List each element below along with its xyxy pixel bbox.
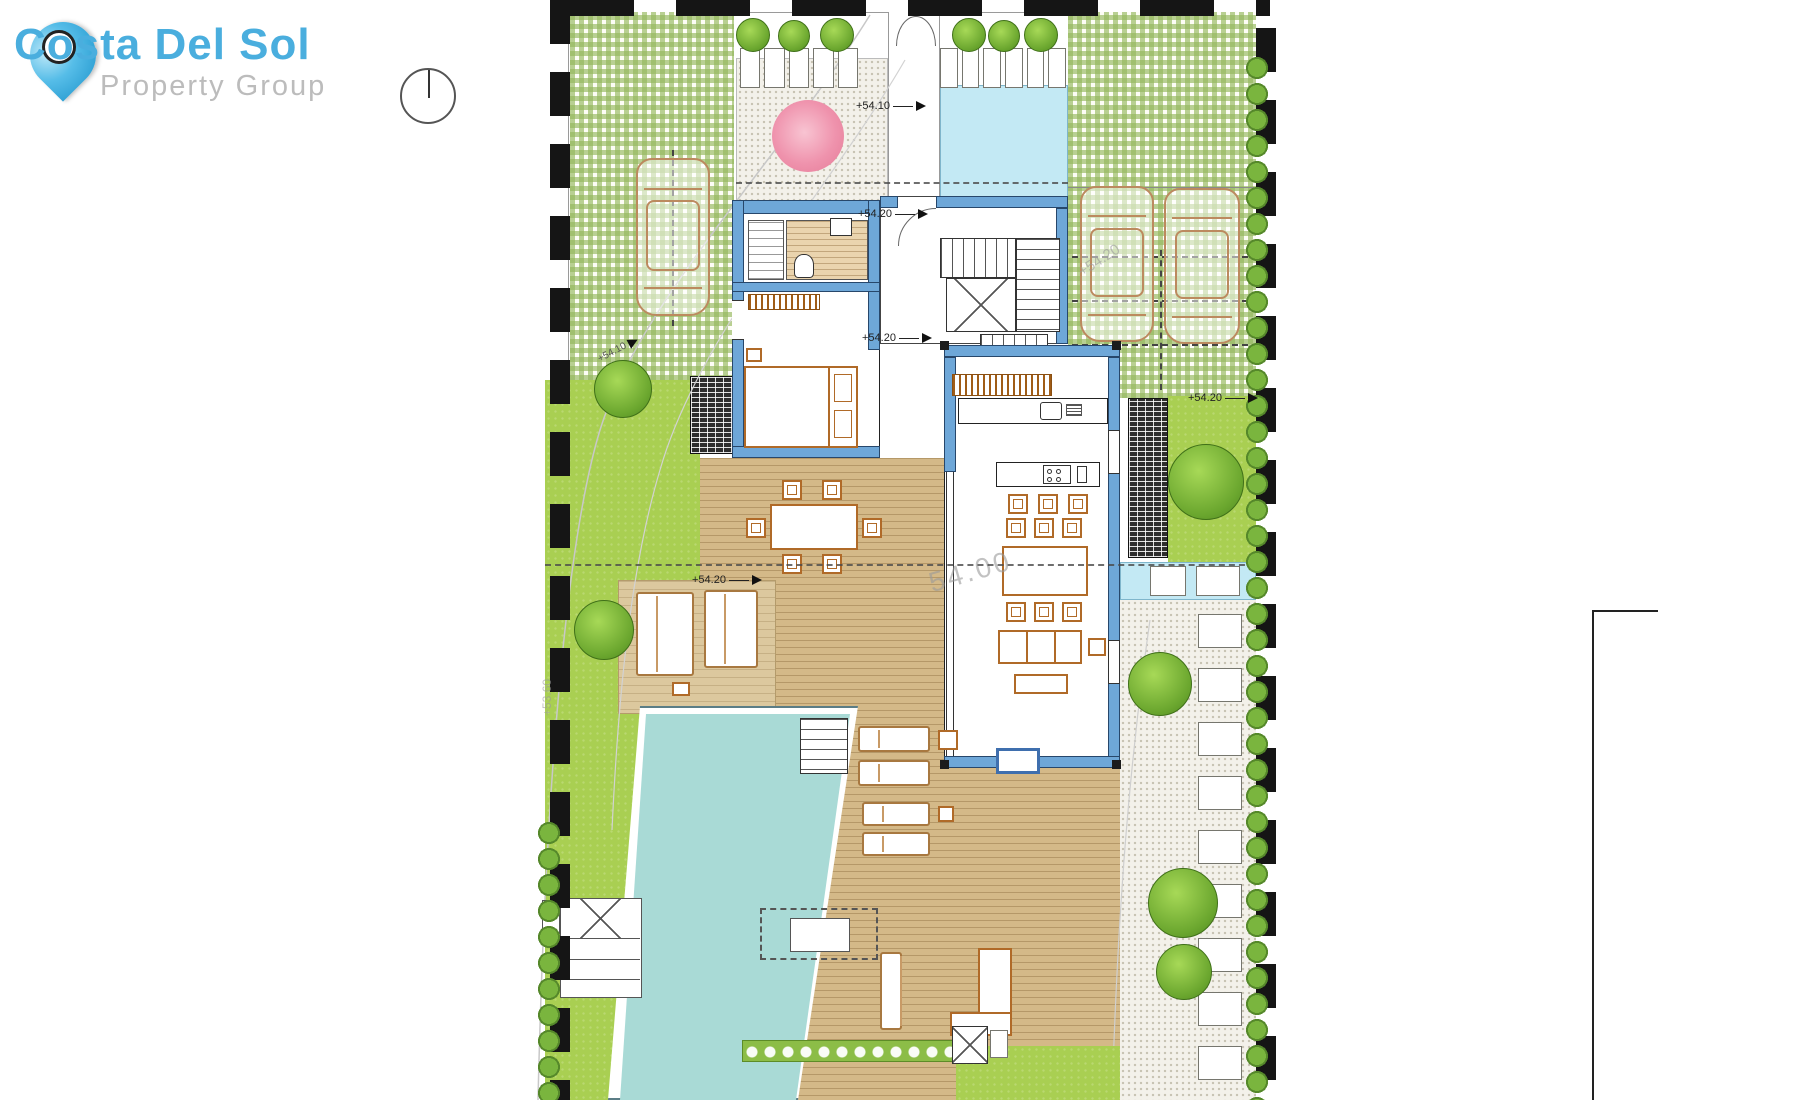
stepping-stone <box>1150 566 1186 596</box>
tree-icon <box>1024 18 1058 52</box>
kitchen-counter <box>958 398 1108 424</box>
sun-lounger <box>862 832 930 856</box>
drainer <box>1066 404 1082 416</box>
dining-chair <box>1006 602 1026 622</box>
dining-table <box>1002 546 1088 596</box>
staircase-side-flight <box>1016 238 1060 332</box>
level-label-entry-hall: +54.20 <box>858 208 928 220</box>
shower <box>748 220 784 280</box>
sofa <box>998 630 1082 664</box>
dining-chair <box>1034 602 1054 622</box>
stepping-stone <box>1198 722 1242 756</box>
outdoor-table-dashed <box>760 908 878 960</box>
outdoor-chair <box>782 480 802 500</box>
level-leader <box>895 214 915 215</box>
window <box>1108 430 1120 474</box>
level-flag-icon <box>916 101 926 111</box>
tree-icon <box>594 360 652 418</box>
column <box>940 341 949 350</box>
hedge-west <box>536 820 564 1100</box>
bar-stool <box>1038 494 1058 514</box>
car-parking-2 <box>1164 188 1240 344</box>
dining-chair <box>1062 518 1082 538</box>
wall <box>868 200 880 350</box>
garden-box <box>990 1030 1008 1058</box>
wall <box>880 196 898 208</box>
wardrobe <box>748 294 820 310</box>
column <box>1112 341 1121 350</box>
level-label-entrance: +54.10 <box>856 100 926 112</box>
bedside-table <box>746 348 762 362</box>
side-table <box>938 730 958 750</box>
side-table <box>938 806 954 822</box>
tree-icon <box>1128 652 1192 716</box>
planter-row-east <box>940 48 1066 88</box>
staircase-upper-flight <box>940 238 1016 278</box>
wall <box>732 282 880 292</box>
dining-chair <box>1034 518 1054 538</box>
side-table <box>1088 638 1106 656</box>
sun-lounger <box>858 726 930 752</box>
level-text: +54.20 <box>692 574 726 586</box>
level-flag-icon <box>1248 393 1258 403</box>
outdoor-chair <box>822 480 842 500</box>
stepping-stone <box>1196 566 1240 596</box>
tree-icon <box>1156 944 1212 1000</box>
stepping-stone <box>1198 668 1242 702</box>
wall <box>936 196 1068 208</box>
window <box>1108 640 1120 684</box>
wall <box>944 345 1120 357</box>
kitchen-island <box>996 462 1100 487</box>
sliding-door <box>996 748 1040 774</box>
double-bed <box>744 366 858 448</box>
daybed <box>636 592 694 676</box>
tree-icon <box>574 600 634 660</box>
level-flag-icon <box>918 209 928 219</box>
dining-chair <box>1006 518 1026 538</box>
glass-wall-west <box>946 472 954 756</box>
stair-void <box>946 278 1016 332</box>
bench <box>880 952 902 1030</box>
tree-icon <box>1148 868 1218 938</box>
level-label-terrace: +54.20 <box>692 574 762 586</box>
stepping-stone <box>1198 776 1242 810</box>
tree-icon <box>736 18 770 52</box>
window <box>732 300 744 340</box>
level-leader <box>729 580 749 581</box>
pool-steps <box>800 718 848 774</box>
site-plan-page: Costa Del Sol Property Group <box>0 0 1800 1100</box>
daybed <box>704 590 758 668</box>
sideboard <box>952 374 1052 396</box>
pouf <box>672 682 690 696</box>
terrain-contours <box>0 0 1800 1100</box>
tree-icon <box>952 18 986 52</box>
column <box>1112 760 1121 769</box>
dining-chair <box>1062 602 1082 622</box>
outdoor-dining-table <box>770 504 858 550</box>
level-text: +54.10 <box>856 100 890 112</box>
floor-plan: 54.00 <box>0 0 1800 1100</box>
boundary-watermark: +53.60 <box>540 679 554 716</box>
level-label-landing: +54.20 <box>862 332 932 344</box>
column <box>940 760 949 769</box>
section-line-upper <box>736 182 1068 184</box>
car-driveway <box>636 158 710 316</box>
toilet <box>794 254 814 278</box>
parking-dash-v <box>1160 250 1162 390</box>
bar-stool <box>1068 494 1088 514</box>
oven <box>1077 466 1087 483</box>
tree-icon <box>988 20 1020 52</box>
stepping-stone <box>1198 992 1242 1026</box>
boundary-top <box>560 0 1270 16</box>
section-line-main <box>545 564 1255 566</box>
garden-structure <box>952 1026 988 1064</box>
level-label-garden-east: +54.20 <box>1188 392 1258 404</box>
level-text: +54.20 <box>1188 392 1222 404</box>
outdoor-chair <box>746 518 766 538</box>
garden-shed <box>560 898 642 998</box>
stepping-stone <box>1198 830 1242 864</box>
planter-row-west <box>740 48 858 88</box>
tree-icon <box>820 18 854 52</box>
level-leader <box>899 338 919 339</box>
flowering-tree <box>772 100 844 172</box>
sun-lounger <box>862 802 930 826</box>
washbasin <box>830 218 852 236</box>
hedge-east <box>1244 55 1272 1100</box>
stepping-stone <box>1198 614 1242 648</box>
level-leader <box>893 106 913 107</box>
level-text: +54.20 <box>858 208 892 220</box>
bar-stool <box>1008 494 1028 514</box>
tree-icon <box>1168 444 1244 520</box>
coffee-table <box>1014 674 1068 694</box>
level-text: +54.20 <box>862 332 896 344</box>
level-flag-icon <box>922 333 932 343</box>
wall <box>1108 357 1120 768</box>
outdoor-chair <box>862 518 882 538</box>
tree-icon <box>778 20 810 52</box>
kitchen-sink <box>1040 402 1062 420</box>
hedge-south <box>742 1040 956 1062</box>
level-leader <box>1225 398 1245 399</box>
sun-lounger <box>858 760 930 786</box>
level-flag-icon <box>752 575 762 585</box>
stepping-stone <box>1198 1046 1242 1080</box>
